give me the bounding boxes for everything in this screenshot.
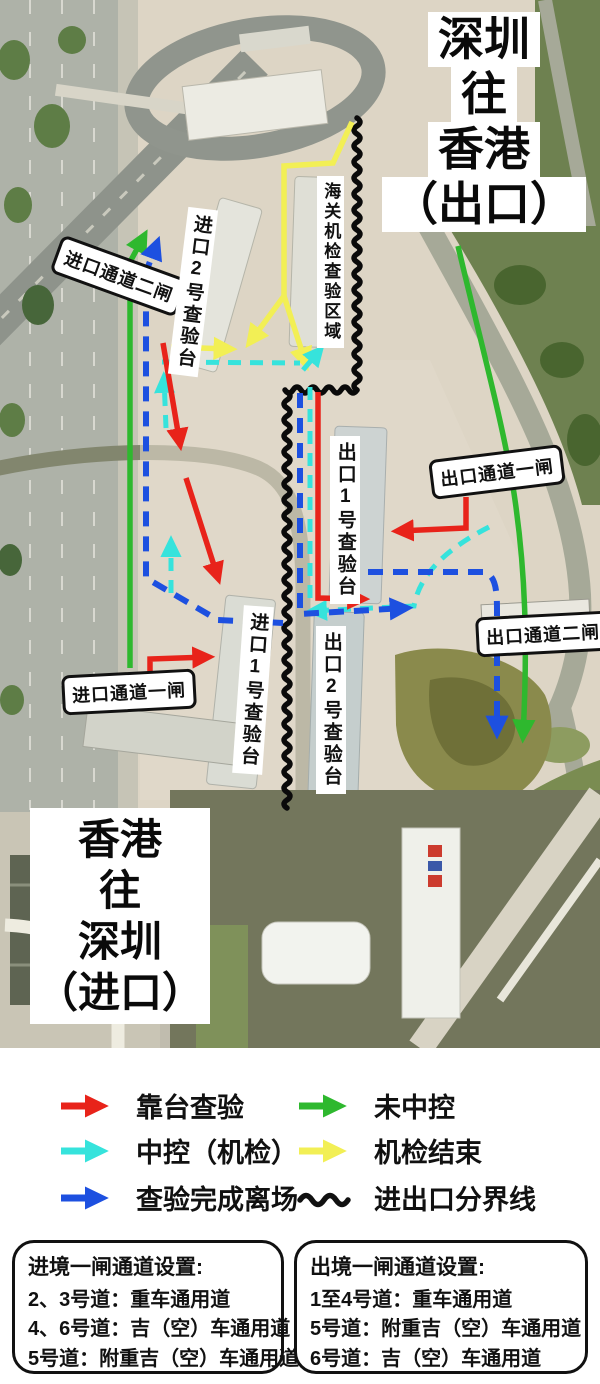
legend-item-dock-inspection: 靠台查验 xyxy=(58,1086,244,1125)
direction-label-shenzhen-to-hongkong: 深圳 往 香港 （出口） xyxy=(368,12,600,232)
green-arrow-icon xyxy=(296,1092,362,1120)
cyan-arrow-icon xyxy=(58,1137,124,1165)
legend-item-machine-check-done: 机检结束 xyxy=(296,1131,482,1170)
direction-exit-line: 往 xyxy=(451,67,517,122)
direction-exit-line: 深圳 xyxy=(428,12,540,67)
exit-box-line: 1至4号道：重车通用道 xyxy=(310,1286,574,1315)
label-customs-machine-area: 海关机检查验区域 xyxy=(317,176,344,348)
legend-item-leave-after-inspection: 查验完成离场 xyxy=(58,1178,298,1217)
label-export-booth1: 出口1号查验台 xyxy=(330,436,360,604)
label-import-gate1: 进口通道一闸 xyxy=(61,669,197,716)
red-arrow-icon xyxy=(58,1092,124,1120)
exit-box-line: 6号道：吉（空）车通用道 xyxy=(310,1345,574,1374)
exit-box-line: 5号道：附重吉（空）车通用道 xyxy=(310,1315,574,1344)
entry-box-title: 进境一闸通道设置: xyxy=(28,1251,270,1281)
exit-gate-lane-settings-box: 出境一闸通道设置: 1至4号道：重车通用道 5号道：附重吉（空）车通用道 6号道… xyxy=(294,1240,588,1374)
legend-item-not-central-control: 未中控 xyxy=(296,1086,455,1125)
label-export-gate2: 出口通道二闸 xyxy=(475,611,600,658)
yellow-arrow-icon xyxy=(296,1137,362,1165)
port-aerial-map: 深圳 往 香港 （出口） 香港 往 深圳 （进口） 进口通道二闸 进口通道一闸 … xyxy=(0,0,600,1048)
label-export-booth2: 出口2号查验台 xyxy=(316,626,346,794)
exit-box-title: 出境一闸通道设置: xyxy=(310,1251,574,1281)
blue-arrow-icon xyxy=(58,1184,124,1212)
entry-box-line: 4、6号道：吉（空）车通用道 xyxy=(28,1315,270,1344)
entry-box-line: 5号道：附重吉（空）车通用道 xyxy=(28,1345,270,1374)
legend-item-divider: 进出口分界线 xyxy=(296,1178,536,1217)
wavy-line-icon xyxy=(296,1184,362,1212)
entry-gate-lane-settings-box: 进境一闸通道设置: 2、3号道：重车通用道 4、6号道：吉（空）车通用道 5号道… xyxy=(12,1240,284,1374)
direction-exit-line: （出口） xyxy=(382,177,586,232)
direction-exit-line: 香港 xyxy=(428,122,540,177)
entry-box-line: 2、3号道：重车通用道 xyxy=(28,1286,270,1315)
legend-item-central-machine-check: 中控（机检） xyxy=(58,1131,298,1170)
direction-label-hongkong-to-shenzhen: 香港 往 深圳 （进口） xyxy=(30,808,210,1024)
